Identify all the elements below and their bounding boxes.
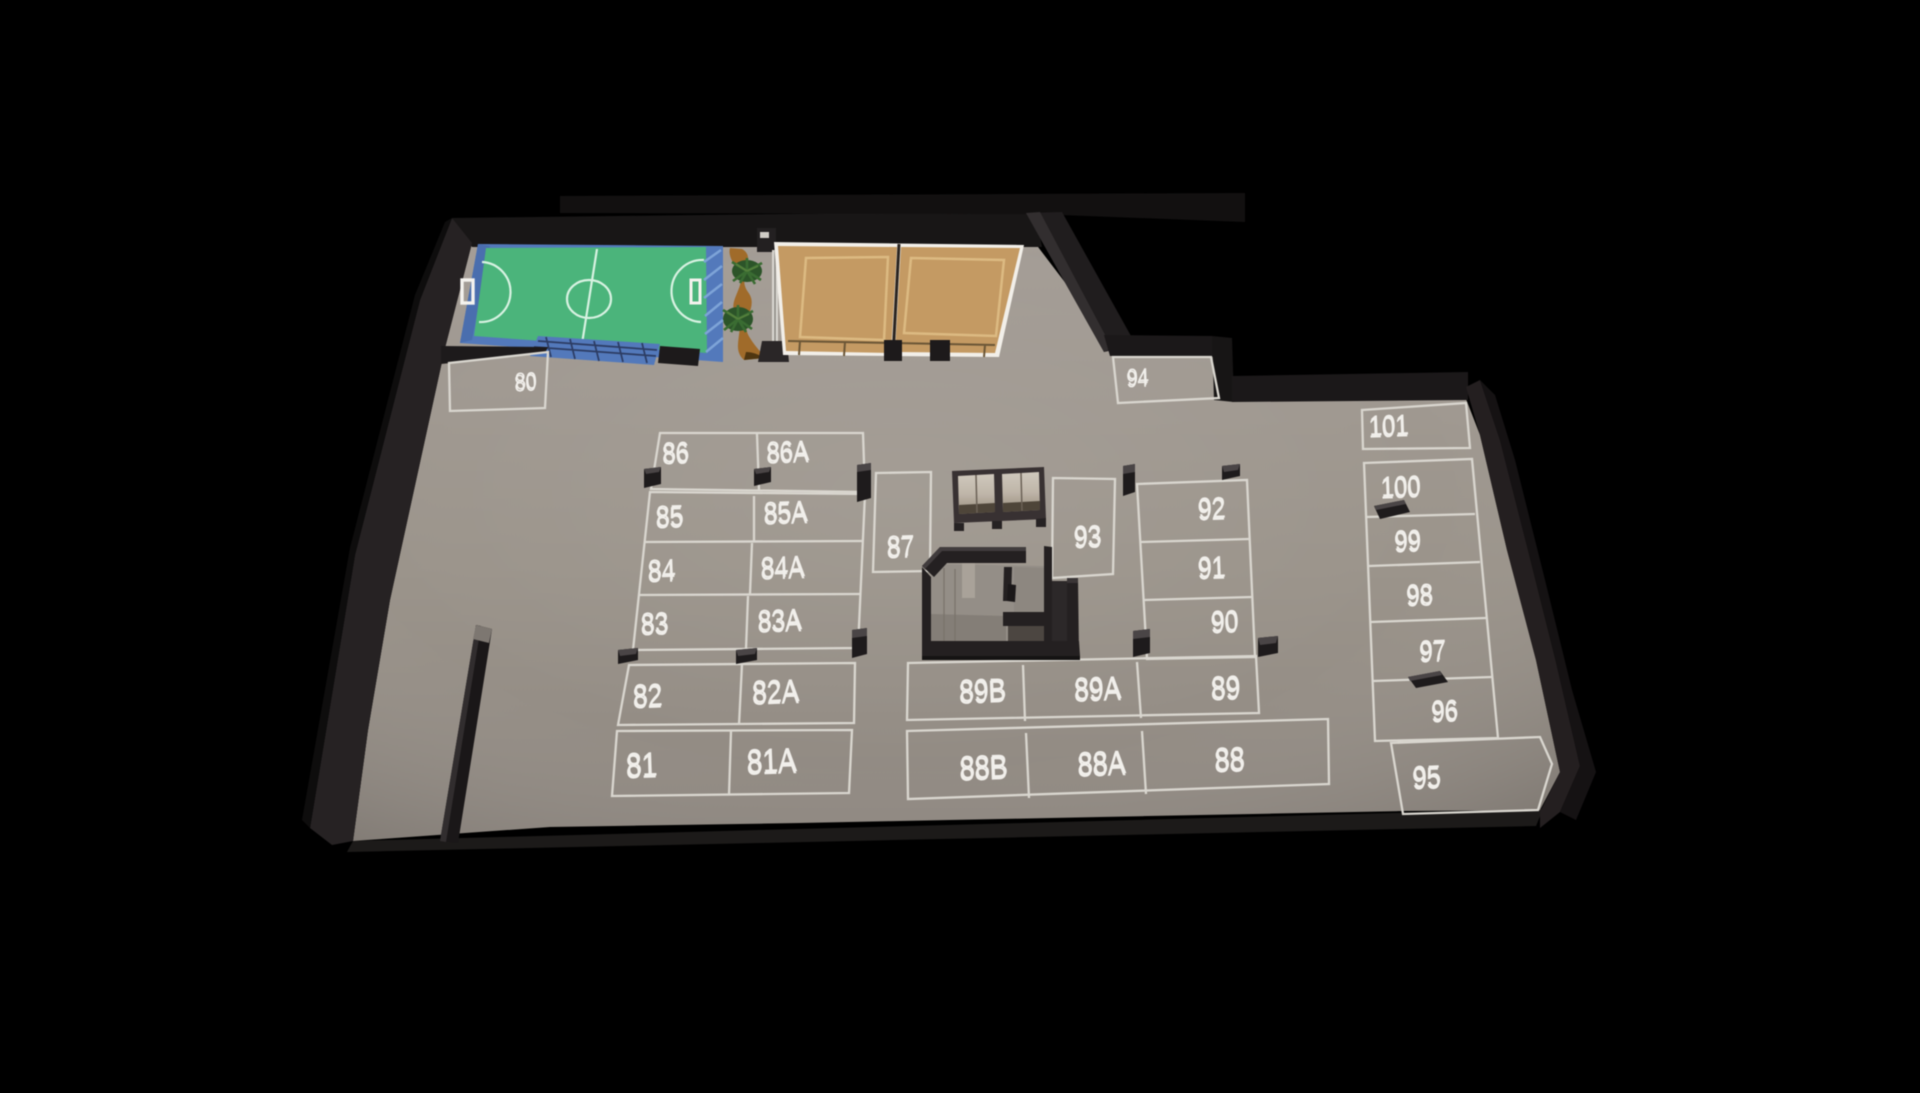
svg-text:97: 97 [1419, 633, 1447, 667]
svg-text:98: 98 [1406, 577, 1434, 611]
svg-text:101: 101 [1369, 408, 1410, 442]
svg-text:90: 90 [1211, 603, 1240, 638]
svg-text:89A: 89A [1074, 671, 1122, 708]
svg-text:93: 93 [1074, 518, 1103, 553]
svg-text:88A: 88A [1077, 745, 1127, 783]
svg-text:84: 84 [648, 552, 677, 587]
svg-text:80: 80 [514, 367, 537, 395]
svg-text:86A: 86A [766, 434, 810, 468]
svg-text:83: 83 [641, 605, 670, 640]
svg-text:89: 89 [1211, 670, 1241, 706]
svg-text:81A: 81A [747, 741, 798, 781]
svg-text:83A: 83A [758, 602, 804, 637]
svg-text:100: 100 [1381, 469, 1422, 503]
svg-text:99: 99 [1394, 523, 1422, 557]
svg-text:89B: 89B [959, 673, 1007, 710]
svg-text:82A: 82A [752, 674, 800, 711]
svg-text:82: 82 [633, 678, 663, 714]
svg-text:95: 95 [1412, 759, 1441, 795]
svg-text:91: 91 [1198, 549, 1227, 584]
svg-text:85A: 85A [764, 494, 810, 529]
svg-text:81: 81 [626, 745, 658, 784]
svg-text:88: 88 [1214, 741, 1245, 778]
svg-text:94: 94 [1127, 363, 1150, 391]
svg-text:87: 87 [887, 528, 916, 563]
svg-text:88B: 88B [959, 749, 1008, 787]
svg-text:96: 96 [1431, 693, 1459, 727]
svg-text:85: 85 [656, 498, 685, 533]
svg-text:84A: 84A [761, 549, 807, 584]
svg-text:86: 86 [662, 435, 690, 469]
svg-text:92: 92 [1198, 490, 1227, 525]
